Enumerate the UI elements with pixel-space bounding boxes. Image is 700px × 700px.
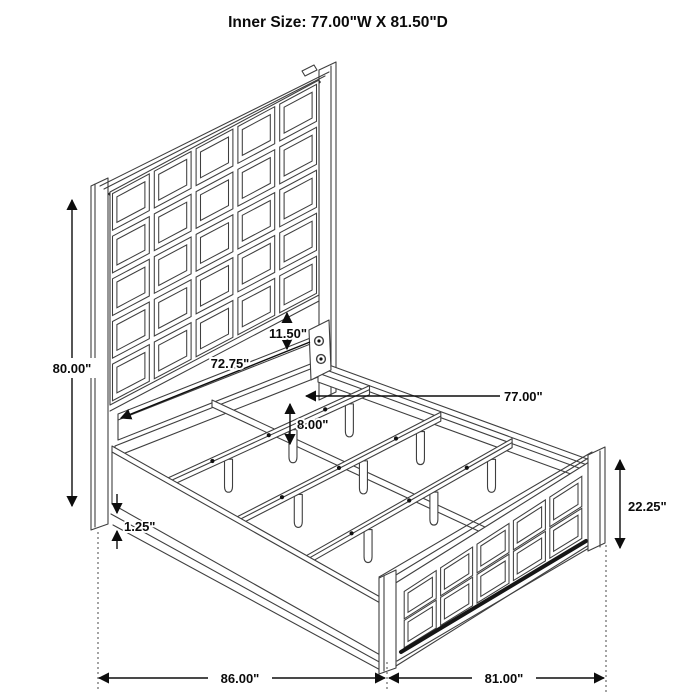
rail-bracket [309,320,331,380]
screw-dot [394,436,398,440]
dim-label-overall-height: 80.00" [53,361,92,376]
diagram-title: Inner Size: 77.00"W X 81.50"D [228,14,448,31]
dim-label-inner-width: 77.00" [504,389,543,404]
dim-footboard-width: 81.00" [389,668,604,688]
screw-dot [407,498,411,502]
footboard-post-left [379,570,396,674]
dim-overall-depth: 86.00" [99,668,385,688]
dim-label-gap: 11.50" [269,326,307,341]
bed-frame-diagram: Inner Size: 77.00"W X 81.50"D 80.00" 72.… [0,0,700,700]
screw-dot [465,466,469,470]
dim-label-headboard-rail: 72.75" [211,356,250,371]
dim-label-overall-depth: 86.00" [221,671,260,686]
screw-dot [267,433,271,437]
screw-dot [210,459,214,463]
slat-support-leg [488,459,496,492]
dim-label-footboard-height: 22.25" [628,499,667,514]
slat-support-leg [359,461,367,494]
diagram-page: Inner Size: 77.00"W X 81.50"D 80.00" 72.… [0,0,700,700]
headboard-post-left [91,178,108,530]
screw-dot [323,407,327,411]
screw-dot [349,531,353,535]
dim-label-rail-bottom: 1.25" [124,519,155,534]
screw-dot [337,466,341,470]
slat-support-leg [345,404,353,437]
dim-footboard-height: 22.25" [620,460,667,548]
screw-dot [280,495,284,499]
side-rail-front [111,446,384,672]
slat-support-leg [416,432,424,465]
dim-label-footboard-width: 81.00" [485,671,524,686]
slat-support-leg [225,459,233,492]
slat-support-leg [294,494,302,527]
slat-support-leg [364,530,372,563]
slat-support-leg [430,492,438,525]
footboard-post-right [588,447,605,551]
dim-label-leg-height: 8.00" [297,417,328,432]
